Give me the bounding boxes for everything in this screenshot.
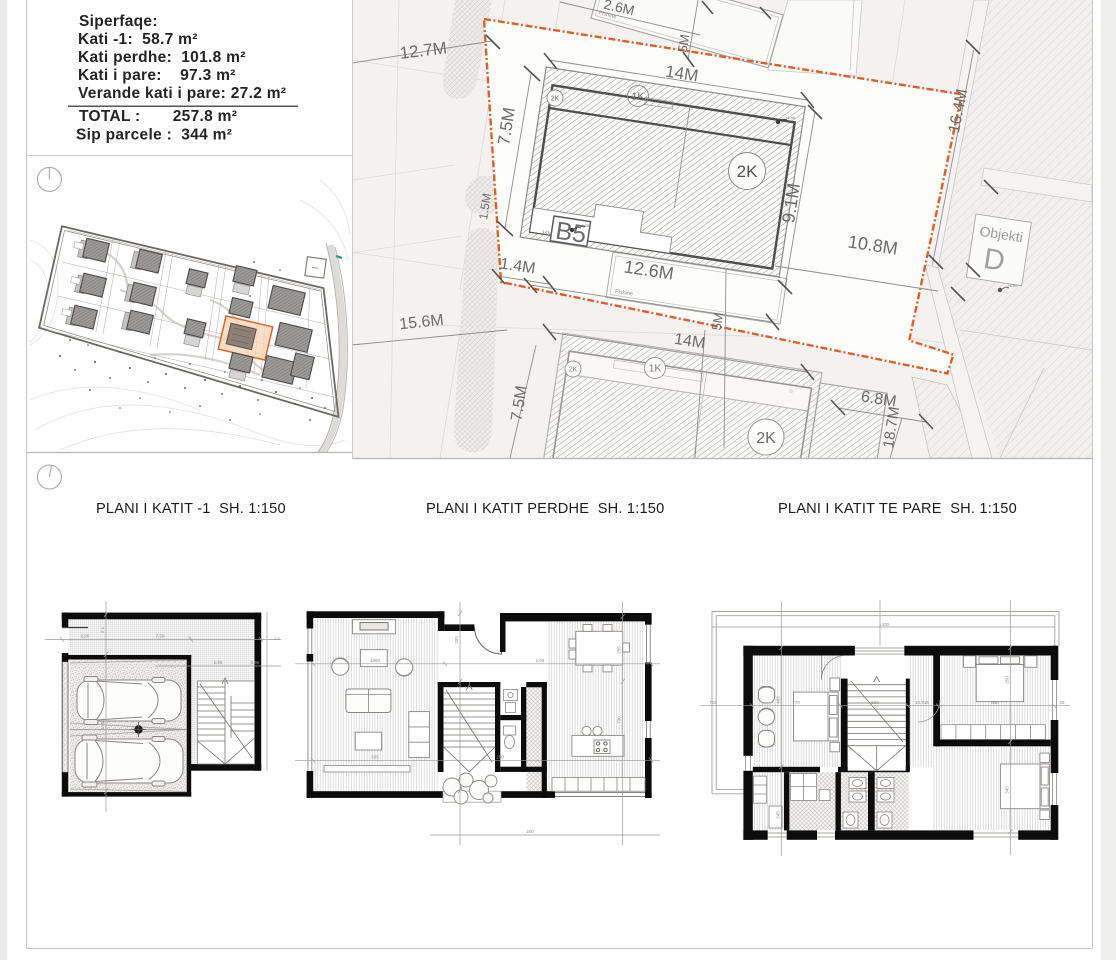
svg-text:25: 25 bbox=[1059, 700, 1065, 705]
svg-text:1.05: 1.05 bbox=[536, 658, 545, 663]
svg-text:260: 260 bbox=[496, 755, 504, 760]
svg-text:5M: 5M bbox=[675, 33, 693, 53]
svg-text:Sip parcele : 344 m²: Sip parcele : 344 m² bbox=[76, 127, 232, 144]
svg-text:255: 255 bbox=[617, 646, 622, 654]
svg-text:1400: 1400 bbox=[879, 622, 890, 627]
svg-text:2K: 2K bbox=[756, 430, 776, 447]
svg-text:B5: B5 bbox=[554, 217, 588, 249]
svg-text:Kati i pare: 97.3 m²: Kati i pare: 97.3 m² bbox=[78, 67, 236, 84]
svg-text:PLANI I KATIT -1 SH. 1:150: PLANI I KATIT -1 SH. 1:150 bbox=[96, 501, 286, 517]
svg-text:2.98: 2.98 bbox=[251, 660, 260, 665]
svg-text:730: 730 bbox=[617, 716, 622, 724]
svg-text:2.5: 2.5 bbox=[274, 636, 280, 641]
svg-text:+0.00: +0.00 bbox=[579, 223, 590, 228]
svg-text:+4.60: +4.60 bbox=[1007, 283, 1018, 288]
svg-text:10.915: 10.915 bbox=[915, 700, 929, 705]
svg-text:715: 715 bbox=[709, 700, 717, 705]
svg-text:2K: 2K bbox=[569, 367, 578, 374]
svg-text:5M: 5M bbox=[709, 311, 727, 331]
svg-text:Kati -1: 58.7 m²: Kati -1: 58.7 m² bbox=[78, 31, 198, 48]
svg-text:200: 200 bbox=[454, 636, 459, 644]
svg-text:1K: 1K bbox=[632, 91, 645, 103]
svg-text:1.96: 1.96 bbox=[214, 660, 223, 665]
svg-text:Kati perdhe: 101.8 m²: Kati perdhe: 101.8 m² bbox=[78, 49, 246, 66]
svg-text:2K: 2K bbox=[551, 96, 560, 103]
svg-text:250: 250 bbox=[1004, 676, 1009, 684]
svg-text:245: 245 bbox=[775, 811, 780, 819]
svg-text:5.95: 5.95 bbox=[100, 721, 105, 730]
svg-text:PLANI I KATIT PERDHE SH. 1:15: PLANI I KATIT PERDHE SH. 1:150 bbox=[426, 501, 664, 517]
svg-text:660: 660 bbox=[991, 700, 999, 705]
svg-text:200: 200 bbox=[526, 829, 534, 834]
svg-text:2.20: 2.20 bbox=[81, 634, 90, 639]
svg-text:1K: 1K bbox=[649, 363, 662, 375]
svg-text:Siperfaqe:: Siperfaqe: bbox=[79, 13, 158, 30]
svg-text:465: 465 bbox=[775, 696, 780, 704]
svg-text:2.1: 2.1 bbox=[100, 626, 105, 633]
svg-text:+1.40: +1.40 bbox=[785, 115, 796, 120]
svg-text:PLANI I KATIT TE PARE SH. 1:1: PLANI I KATIT TE PARE SH. 1:150 bbox=[778, 501, 1017, 517]
svg-text:1360: 1360 bbox=[370, 658, 381, 663]
svg-text:345: 345 bbox=[1004, 786, 1009, 794]
svg-text:560: 560 bbox=[871, 700, 879, 705]
svg-text:505: 505 bbox=[371, 755, 379, 760]
svg-text:Verande kati i pare: 27.2 m²: Verande kati i pare: 27.2 m² bbox=[78, 85, 286, 102]
svg-text:7.50: 7.50 bbox=[156, 634, 165, 639]
svg-text:770: 770 bbox=[792, 700, 800, 705]
svg-text:TOTAL : 257.8 m²: TOTAL : 257.8 m² bbox=[79, 108, 237, 125]
svg-text:2K: 2K bbox=[737, 162, 758, 181]
